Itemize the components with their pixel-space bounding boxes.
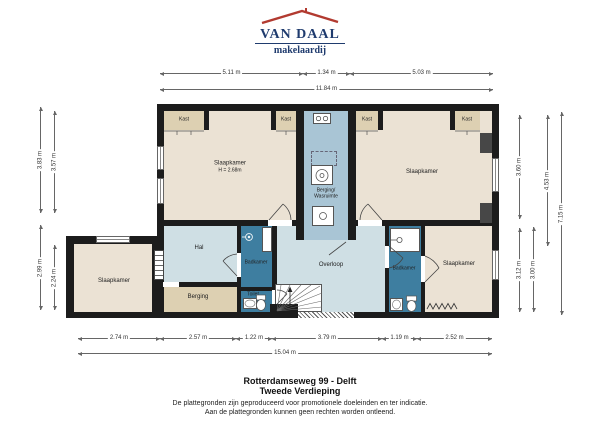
wall-segment [378, 111, 383, 130]
dim-top-seg2: 1.34 m [303, 73, 350, 74]
label-kast-2: Kast [281, 117, 291, 123]
dim-left-seg1: 3.83 m [40, 107, 41, 213]
label-slaapkamer-left: Slaapkamer [98, 278, 130, 285]
window [157, 146, 164, 170]
label-hal: Hal [194, 245, 203, 252]
wall-segment [348, 104, 356, 240]
floorplan-page: VAN DAAL makelaardij 5.11 m 1.34 m 5.03 … [0, 0, 600, 424]
room-slaapkamer-bottom-right [425, 226, 492, 312]
agency-logo: VAN DAAL makelaardij [252, 7, 348, 56]
dim-left-seg4: 2.24 m [54, 245, 55, 310]
dryer-reserved-outline [311, 151, 337, 166]
door-opening [385, 246, 389, 268]
door-opening [358, 220, 382, 226]
door-opening [163, 282, 179, 287]
footer-floor: Tweede Verdieping [0, 386, 600, 396]
dim-bottom-seg3: 1.22 m [236, 338, 272, 339]
label-kast-1: Kast [179, 117, 189, 123]
window [492, 158, 499, 192]
label-overloop: Overloop [319, 262, 343, 269]
door-opening [268, 220, 292, 226]
logo-brand-text: VAN DAAL [252, 28, 348, 42]
dim-bottom-seg1: 2.74 m [78, 338, 160, 339]
stair-void-hatch [298, 312, 354, 318]
logo-tagline: makelaardij [252, 45, 348, 56]
footer-address: Rotterdamseweg 99 - Delft [0, 376, 600, 386]
logo-underline [255, 43, 345, 44]
boiler-icon [312, 206, 334, 226]
label-slaapkamer-top-right: Slaapkamer [406, 169, 438, 176]
label-berging-wasruimte: Berging/ Wasruimte [314, 189, 338, 200]
label-kast-3: Kast [362, 117, 372, 123]
dim-right-seg4: 4.53 m [547, 115, 548, 246]
door-opening [421, 256, 425, 282]
bathtub-icon [390, 228, 420, 252]
shaft-duct [480, 133, 492, 153]
door-opening [237, 253, 241, 277]
dim-top-seg1: 5.11 m [160, 73, 303, 74]
dim-bottom-seg4: 3.79 m [272, 338, 382, 339]
dim-bottom-total: 15.04 m [78, 353, 492, 354]
footer-disclaimer-1: De plattegronden zijn geproduceerd voor … [0, 400, 600, 409]
dim-bottom-seg2: 2.57 m [160, 338, 236, 339]
label-kast-4: Kast [462, 117, 472, 123]
washing-machine-icon [311, 165, 333, 185]
label-slaapkamer-top-left: Slaapkamer H = 2.68m [214, 161, 246, 174]
sink-icon [243, 298, 257, 309]
label-toilet: Toilet [247, 292, 259, 298]
footer-disclaimer-2: Aan de plattegronden kunnen geen rechten… [0, 409, 600, 418]
wall-segment [385, 226, 389, 312]
roof-icon [258, 7, 342, 25]
dim-right-seg2: 3.12 m [519, 228, 520, 312]
wall-segment [271, 111, 276, 130]
dim-right-seg1: 3.60 m [519, 115, 520, 219]
wall-segment [270, 304, 298, 318]
bathroom-closet [262, 227, 272, 252]
shaft-duct [480, 203, 492, 223]
window [157, 178, 164, 204]
dim-bottom-seg5: 1.19 m [382, 338, 417, 339]
ventilation-unit-icon [313, 113, 331, 124]
room-hal [164, 226, 237, 282]
window [492, 250, 499, 280]
sink-icon [390, 298, 403, 311]
wall-segment [296, 104, 304, 240]
wall-segment [450, 111, 455, 130]
label-berging: Berging [188, 294, 209, 301]
dim-bottom-seg6: 2.52 m [417, 338, 492, 339]
window [96, 236, 130, 243]
dim-right-seg3: 3.00 m [533, 227, 534, 312]
dim-left-seg2: 3.57 m [54, 111, 55, 213]
label-slaapkamer-bottom-right: Slaapkamer [443, 261, 475, 268]
dim-top-seg3: 5.03 m [350, 73, 493, 74]
wall-segment [204, 111, 209, 130]
dim-right-seg5: 7.15 m [561, 112, 562, 315]
ladder-icon [154, 250, 164, 280]
dim-top-total: 11.84 m [160, 89, 493, 90]
dim-left-seg3: 2.99 m [40, 225, 41, 310]
label-badkamer-right: Badkamer [393, 266, 416, 272]
label-badkamer-center: Badkamer [245, 260, 268, 266]
